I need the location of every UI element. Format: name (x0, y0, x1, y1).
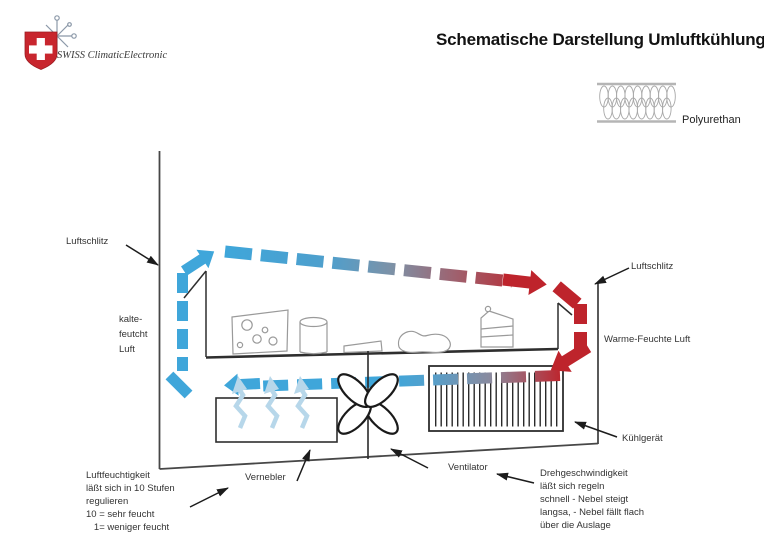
ventilator-arrow (391, 449, 428, 468)
label-kuehlgeraet: Kühlgerät (622, 432, 663, 445)
drehgeschwindigkeit-arrow (497, 474, 534, 483)
kuehlgeraet-arrow (575, 422, 617, 437)
vernebler-arrow (297, 450, 310, 481)
cheese-wedge-icon (232, 310, 288, 354)
fan-icon (333, 351, 403, 459)
label-ventilator: Ventilator (448, 461, 488, 474)
croissant-icon (398, 331, 450, 352)
label-luftschlitz-left: Luftschlitz (66, 235, 108, 248)
swiss-shield-icon (25, 32, 57, 70)
polyurethane-swatch (597, 84, 676, 122)
tray-icon (344, 341, 382, 353)
warm-air-top-arrowhead (502, 267, 549, 297)
luftfeuchtigkeit-arrow (190, 488, 228, 507)
cold-air-corner-dash (166, 372, 193, 399)
food-items (232, 306, 513, 354)
label-warme-feuchte-luft: Warme-Feuchte Luft (604, 333, 690, 346)
polyurethane-label: Polyurethan (682, 114, 741, 126)
cake-slice-icon (481, 306, 513, 347)
brand-logo (25, 16, 76, 70)
note-luftfeuchtigkeit: Luftfeuchtigkeit läßt sich in 10 Stufen … (86, 469, 175, 534)
label-vernebler: Vernebler (245, 471, 286, 484)
label-kalte-feucht-luft: kalte- feutcht Luft (119, 312, 148, 357)
warm-air-top-arrow (225, 252, 512, 282)
luftschlitz-right-arrow (595, 268, 629, 284)
cheese-wheel-icon (300, 318, 327, 354)
schematic-page: SWISS ClimaticElectronic Schematische Da… (0, 0, 764, 540)
note-drehgeschwindigkeit: Drehgeschwindigkeit läßt sich regeln sch… (540, 467, 644, 532)
floor-line (160, 444, 599, 470)
luftschlitz-left-arrow (126, 245, 158, 265)
brand-name: SWISS ClimaticElectronic (57, 50, 167, 61)
label-luftschlitz-right: Luftschlitz (631, 260, 673, 273)
page-title: Schematische Darstellung Umluftkühlung (436, 30, 764, 50)
